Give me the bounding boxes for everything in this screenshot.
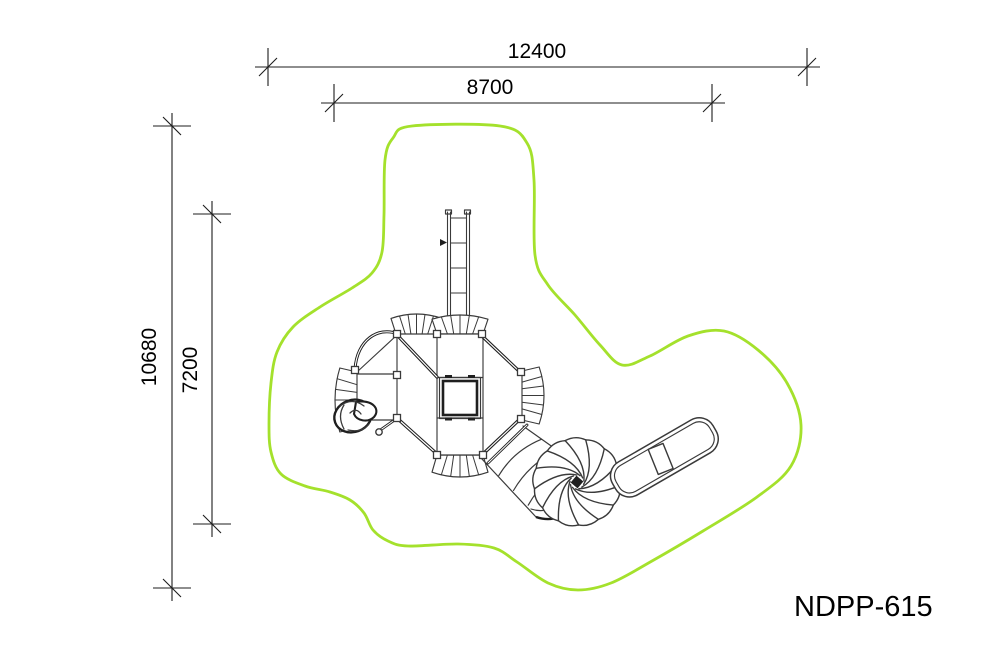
- safety-zone-outline: [269, 124, 801, 590]
- spiral-slide: [533, 438, 621, 526]
- dimension-equipment-depth: 7200: [179, 201, 231, 537]
- dimension-label-overall-depth: 10680: [138, 328, 161, 386]
- entrance-ladder: [440, 210, 471, 317]
- dimension-label-equipment-width: 8700: [467, 76, 514, 99]
- dimension-overall-width: 12400: [255, 40, 820, 86]
- dimension-equipment-width: 8700: [321, 76, 725, 122]
- dimension-label-overall-width: 12400: [508, 40, 566, 63]
- product-code-label: NDPP-615: [794, 591, 933, 623]
- climbing-wall-right: [522, 367, 544, 424]
- playground-plan-drawing: 12400 8700 10680 7200 NDPP-615: [0, 0, 1000, 666]
- play-structure: [330, 210, 724, 526]
- slide-exit-chute: [605, 412, 724, 503]
- dimension-label-equipment-depth: 7200: [179, 347, 202, 394]
